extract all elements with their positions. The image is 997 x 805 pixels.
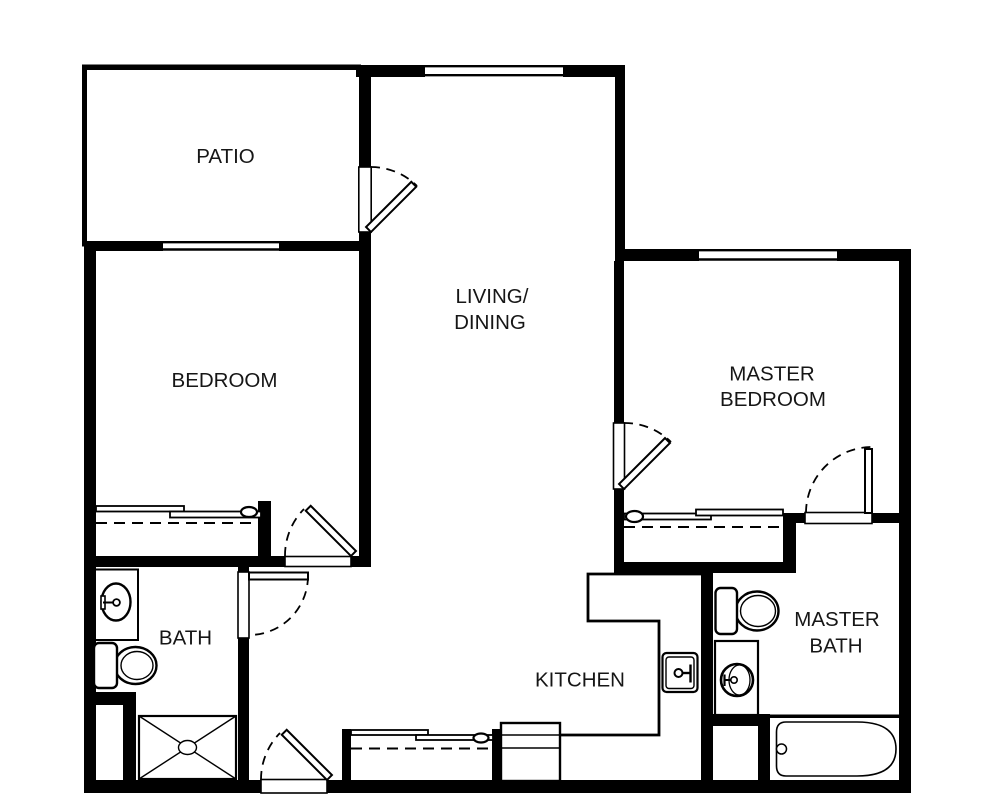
svg-text:PATIO: PATIO bbox=[196, 145, 254, 168]
svg-text:KITCHEN: KITCHEN bbox=[535, 669, 625, 692]
svg-text:BEDROOM: BEDROOM bbox=[720, 388, 826, 411]
svg-text:DINING: DINING bbox=[454, 311, 526, 334]
svg-text:MASTER: MASTER bbox=[794, 608, 879, 631]
svg-text:MASTER: MASTER bbox=[729, 363, 814, 386]
svg-text:LIVING/: LIVING/ bbox=[456, 285, 529, 308]
svg-text:BATH: BATH bbox=[809, 635, 862, 658]
svg-text:BATH: BATH bbox=[159, 627, 212, 650]
svg-text:BEDROOM: BEDROOM bbox=[172, 369, 278, 392]
